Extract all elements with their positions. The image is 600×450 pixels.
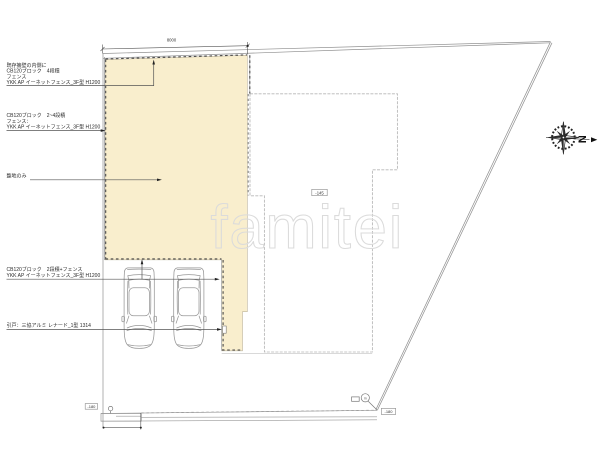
svg-text:-180: -180 [87, 404, 96, 409]
svg-text:YKK AP イーネットフェンス_3F型 H1200: YKK AP イーネットフェンス_3F型 H1200 [7, 124, 101, 131]
svg-text:-145: -145 [315, 190, 324, 195]
svg-text:YKK AP イーネットフェンス_3F型 H1200: YKK AP イーネットフェンス_3F型 H1200 [7, 79, 101, 86]
svg-text:-180: -180 [384, 409, 393, 414]
svg-text:整地のみ: 整地のみ [7, 173, 27, 180]
svg-text:famitei: famitei [211, 193, 405, 262]
svg-text:YKK AP イーネットフェンス_3F型 H1200: YKK AP イーネットフェンス_3F型 H1200 [7, 272, 101, 279]
svg-text:8000: 8000 [167, 38, 177, 43]
svg-text:N: N [576, 135, 588, 143]
svg-text:引戸：三協アルミ レナード_1型 1314: 引戸：三協アルミ レナード_1型 1314 [7, 322, 92, 329]
svg-text:m: m [364, 397, 367, 401]
